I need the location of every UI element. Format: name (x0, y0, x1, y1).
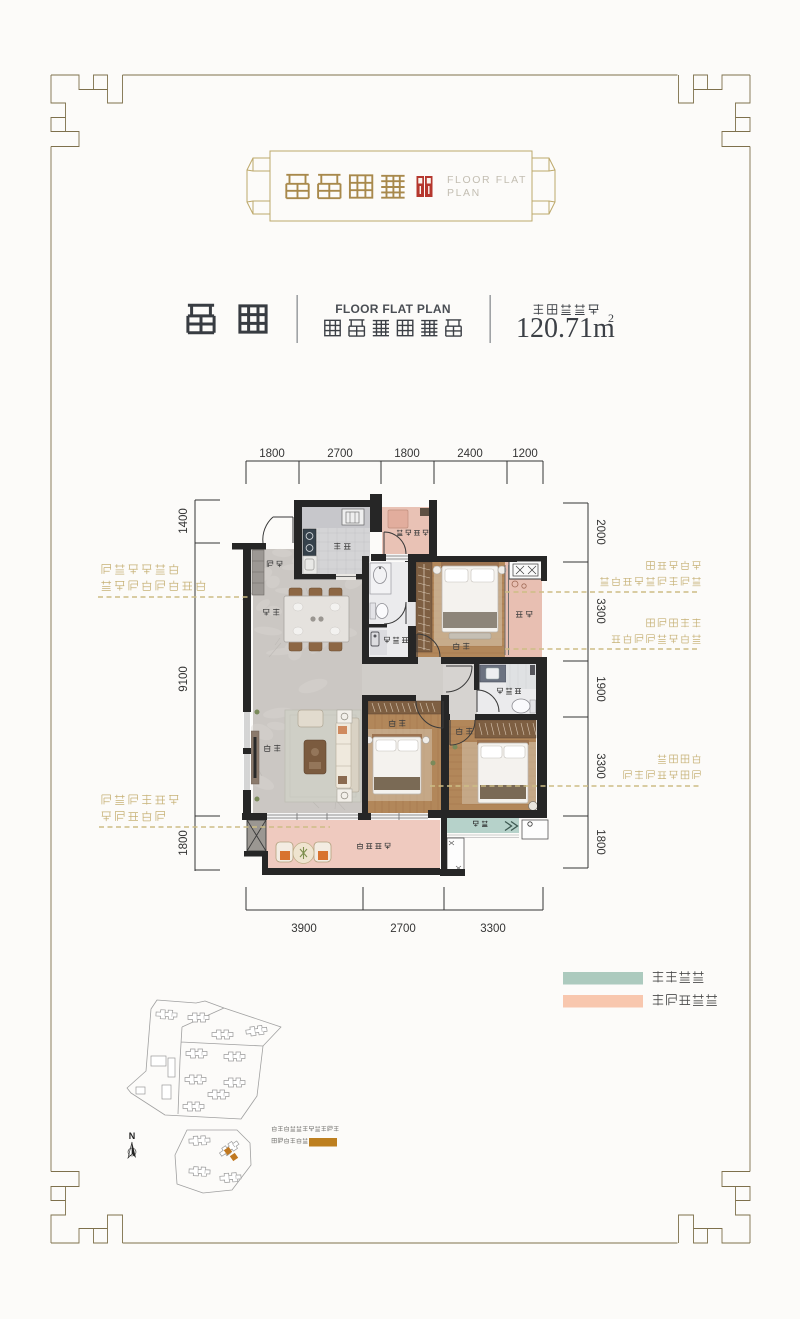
svg-text:2700: 2700 (390, 923, 416, 935)
svg-text:2: 2 (608, 311, 614, 325)
svg-text:2700: 2700 (327, 448, 353, 460)
svg-text:FLOOR FLAT PLAN: FLOOR FLAT PLAN (335, 302, 451, 316)
svg-text:PLAN: PLAN (447, 187, 481, 199)
svg-text:1200: 1200 (512, 448, 538, 460)
svg-text:1800: 1800 (178, 830, 190, 856)
svg-text:2400: 2400 (457, 448, 483, 460)
svg-text:N: N (129, 1131, 136, 1141)
svg-text:1800: 1800 (259, 448, 285, 460)
svg-text:9100: 9100 (178, 666, 190, 692)
svg-text:3300: 3300 (594, 753, 606, 779)
svg-text:1400: 1400 (178, 508, 190, 534)
svg-text:3300: 3300 (480, 923, 506, 935)
svg-text:FLOOR FLAT: FLOOR FLAT (447, 174, 527, 186)
svg-text:120.71m: 120.71m (516, 313, 615, 344)
svg-text:3900: 3900 (291, 923, 317, 935)
svg-text:1900: 1900 (594, 676, 606, 702)
svg-text:2000: 2000 (594, 519, 606, 545)
svg-text:1800: 1800 (594, 829, 606, 855)
svg-text:3300: 3300 (594, 598, 606, 624)
svg-text:1800: 1800 (394, 448, 420, 460)
